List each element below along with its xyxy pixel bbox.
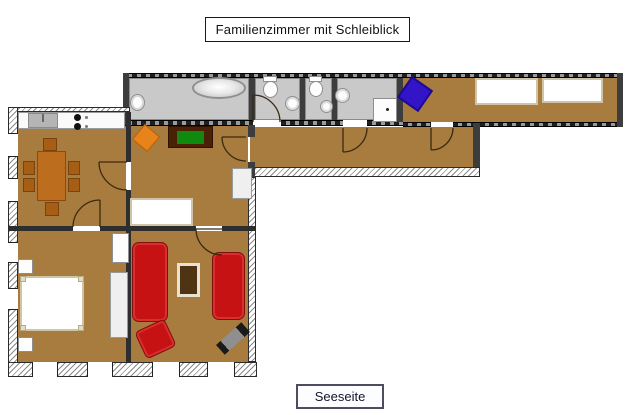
bed-post-icon (20, 325, 26, 331)
window (152, 362, 180, 377)
window (32, 362, 58, 377)
wall-strip-right (617, 73, 623, 127)
wall-corridor-bottom (250, 167, 480, 177)
single-bed (542, 78, 603, 103)
wall-interior-horizontal (8, 226, 73, 231)
window (8, 133, 18, 157)
stove-burner-icon (74, 123, 81, 130)
cabinet (112, 233, 129, 263)
window (8, 288, 18, 310)
shower-drain-icon (386, 108, 389, 111)
window (8, 178, 18, 202)
shower-icon (373, 98, 397, 122)
wash-basin-icon (130, 94, 145, 111)
toilet-icon (309, 81, 323, 97)
bed-post-icon (78, 276, 84, 282)
bed-post-icon (78, 325, 84, 331)
tv-sideboard (168, 126, 213, 148)
double-bed (20, 276, 84, 331)
bed-post-icon (20, 276, 26, 282)
dining-chair (68, 161, 80, 175)
wall-interior-horizontal (222, 226, 255, 231)
window (87, 362, 113, 377)
bathtub-icon (192, 77, 246, 99)
single-bed (475, 78, 538, 105)
window (207, 362, 235, 377)
sofa (132, 242, 168, 322)
dining-chair (23, 178, 35, 192)
wash-basin-icon (285, 96, 300, 111)
sofa (212, 252, 245, 320)
window (8, 242, 18, 263)
stove-burner-icon (74, 114, 81, 121)
plan-title: Familienzimmer mit Schleiblick (205, 17, 410, 42)
wall-interior-vertical (126, 112, 131, 162)
toilet-icon (263, 81, 278, 98)
floor-plan: Familienzimmer mit Schleiblick (0, 0, 640, 415)
stove-burner-icon (85, 116, 88, 119)
wall-middleroom-right (248, 125, 255, 137)
wall-bath-wc1 (249, 78, 255, 120)
wardrobe (232, 168, 252, 199)
faucet-icon (42, 114, 44, 122)
wardrobe (110, 272, 128, 338)
wash-basin-icon (335, 88, 350, 103)
stove-burner-icon (85, 125, 88, 128)
dining-chair (45, 202, 59, 216)
corridor-floor (250, 127, 473, 167)
wall-right-outer (248, 177, 256, 362)
dining-chair (23, 161, 35, 175)
coffee-table (177, 263, 200, 297)
dining-table (37, 151, 66, 201)
wall-interior-horizontal (100, 226, 196, 231)
nightstand (18, 337, 33, 352)
tv-icon (177, 131, 204, 144)
single-bed (130, 198, 193, 226)
wall-wc1-wc2 (300, 78, 305, 120)
wall-strip-bottom (403, 122, 431, 127)
wash-basin-icon (320, 100, 333, 113)
dining-chair (68, 178, 80, 192)
wall-strip-bottom (281, 120, 343, 126)
nightstand (18, 259, 33, 274)
dining-chair (43, 138, 57, 151)
seaside-label: Seeseite (296, 384, 384, 409)
